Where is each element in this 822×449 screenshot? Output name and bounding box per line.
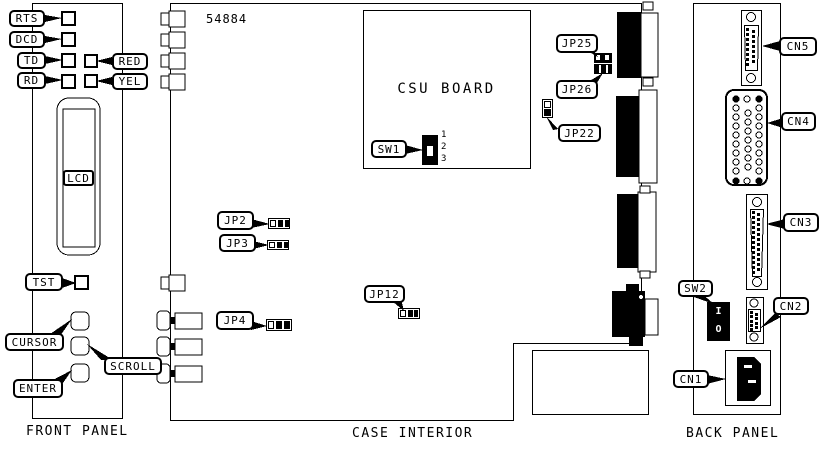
label-cn2: CN2 [773, 297, 809, 315]
label-jp26: JP26 [556, 80, 598, 99]
internal-connector-cn2 [612, 284, 658, 346]
leader-pointers [45, 15, 785, 384]
jp4-jumper [267, 320, 292, 331]
sw1-switch [422, 135, 438, 165]
part-number: 54884 [206, 12, 247, 26]
cn3-connector [747, 195, 768, 290]
label-yel: YEL [112, 73, 148, 90]
label-enter: ENTER [13, 379, 63, 398]
label-jp3: JP3 [219, 234, 256, 252]
label-cn3: CN3 [783, 213, 819, 232]
cn5-connector [742, 11, 762, 86]
front-panel-caption: FRONT PANEL [26, 424, 129, 439]
label-jp25: JP25 [556, 34, 598, 53]
jp2-jumper [269, 219, 290, 229]
jp3-jumper [268, 241, 289, 250]
csu-board-title: CSU BOARD [363, 81, 530, 97]
cn4-connector [726, 90, 767, 185]
label-cn1: CN1 [673, 370, 709, 388]
jp12-jumper [399, 309, 420, 319]
case-interior-caption: CASE INTERIOR [352, 426, 473, 441]
label-sw2: SW2 [678, 280, 713, 297]
label-lcd: LCD [63, 170, 94, 186]
sw1-position-3: 3 [441, 155, 446, 164]
label-td: TD [17, 52, 46, 69]
label-rts: RTS [9, 10, 45, 27]
label-jp12: JP12 [364, 285, 405, 303]
jp22-jumper [543, 100, 553, 118]
internal-connector-cn5 [617, 2, 658, 86]
label-scroll: SCROLL [104, 357, 162, 375]
internal-connector-cn4 [616, 90, 657, 183]
label-sw1: SW1 [371, 140, 407, 158]
back-panel-caption: BACK PANEL [686, 426, 779, 441]
label-red: RED [112, 53, 148, 70]
label-tst: TST [25, 273, 63, 291]
internal-connector-cn3 [617, 186, 656, 278]
cn2-connector [747, 298, 764, 344]
sw2-on-mark: I [708, 307, 729, 317]
label-dcd: DCD [9, 31, 45, 48]
label-jp2: JP2 [217, 211, 254, 230]
sw1-position-2: 2 [441, 143, 446, 152]
cn1-power-inlet [726, 351, 771, 406]
power-supply-outline [533, 351, 649, 415]
label-rd: RD [17, 72, 46, 89]
label-cn4: CN4 [781, 112, 816, 131]
label-jp4: JP4 [216, 311, 254, 330]
label-cn5: CN5 [779, 37, 817, 56]
case-edge-cutouts [157, 11, 202, 383]
sw2-off-mark: O [708, 325, 729, 335]
label-cursor: CURSOR [5, 333, 64, 351]
front-panel-buttons [71, 312, 89, 382]
sw1-position-1: 1 [441, 131, 446, 140]
label-jp22: JP22 [558, 124, 601, 142]
hardware-diagram: RTS DCD TD RD RED YEL LCD TST CURSOR SCR… [0, 0, 822, 449]
